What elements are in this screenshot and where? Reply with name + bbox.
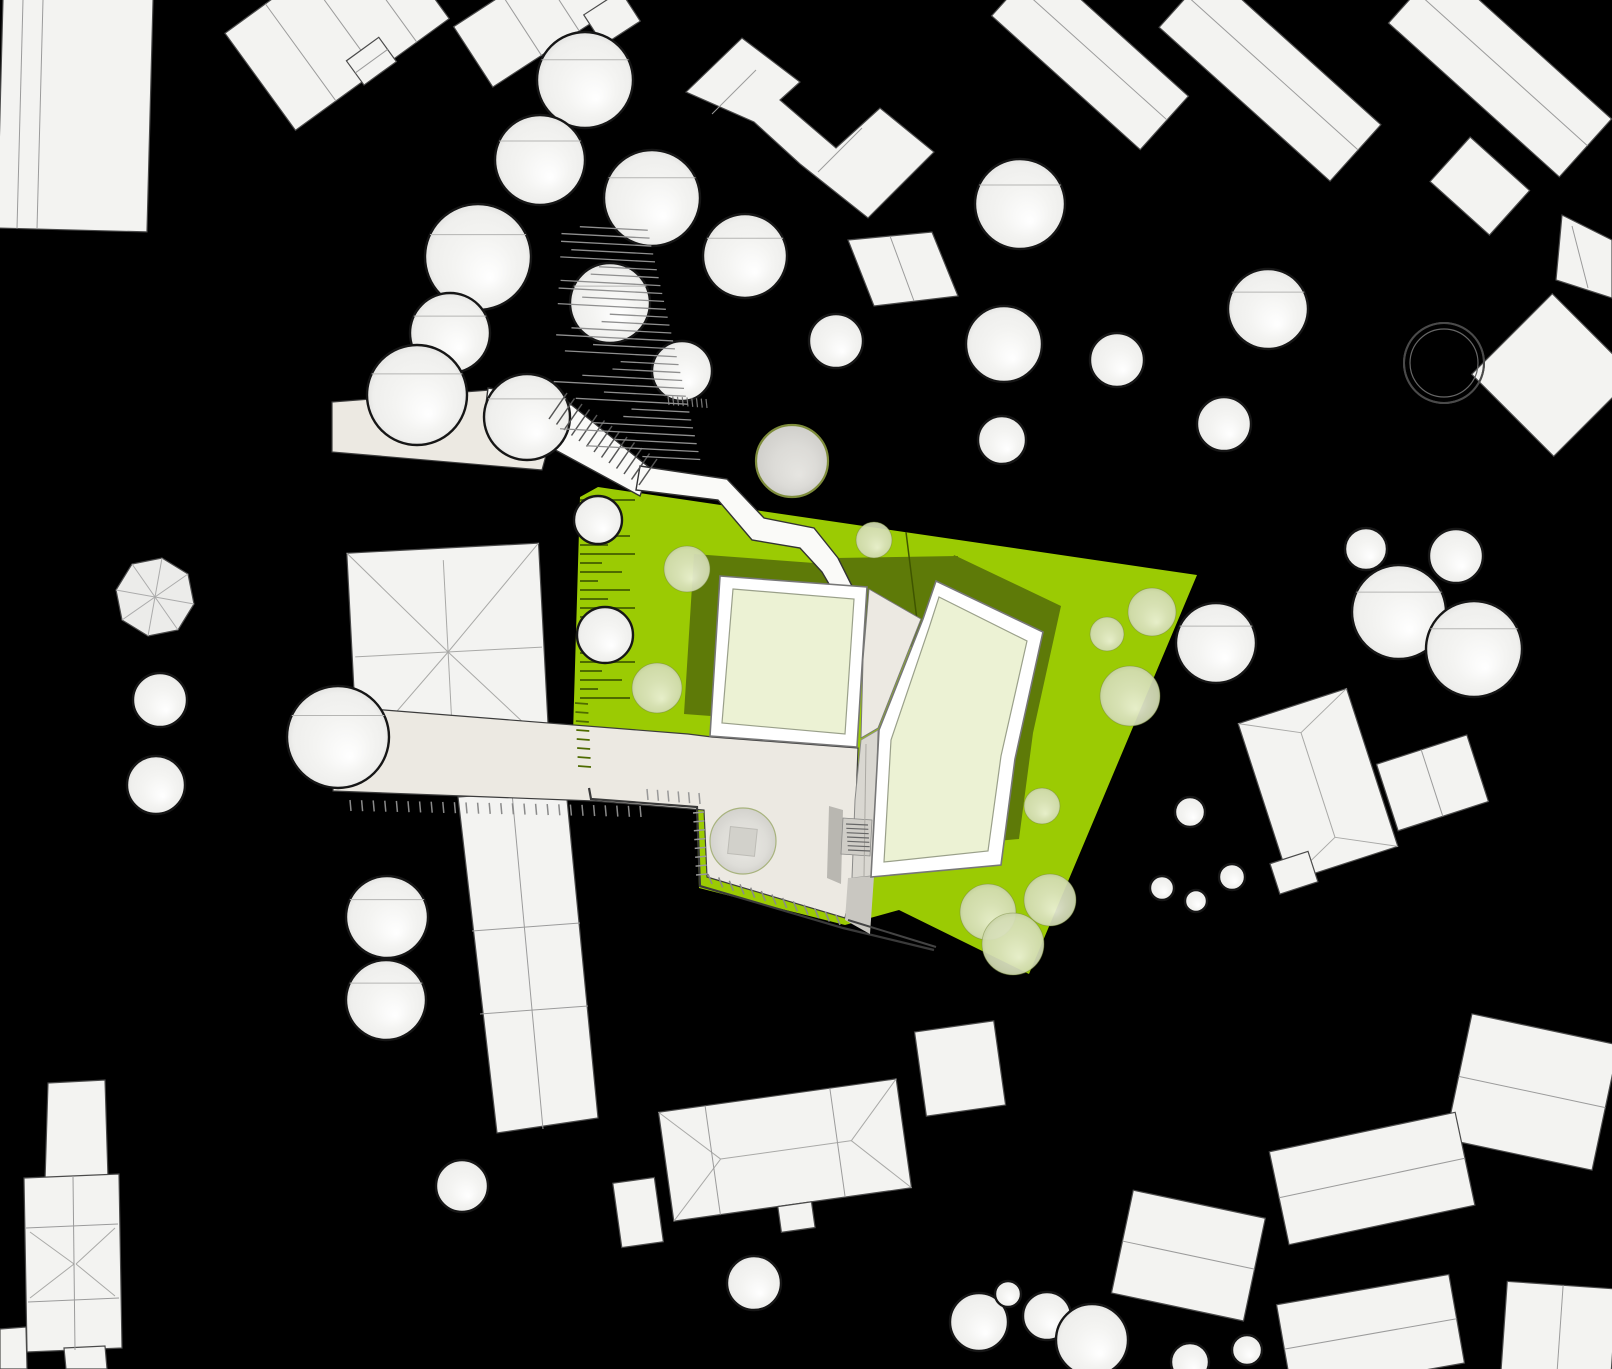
building-gabled-o5 (1501, 1281, 1612, 1369)
tree (756, 425, 828, 497)
tree (1100, 666, 1160, 726)
courtyard-left (722, 589, 854, 734)
tree (1056, 1304, 1128, 1369)
tree (1175, 797, 1205, 827)
tree (856, 522, 892, 558)
tree (664, 546, 710, 592)
tree (346, 876, 428, 958)
tree (537, 32, 633, 128)
tree (367, 345, 467, 445)
tree (978, 416, 1026, 464)
tree (1185, 890, 1207, 912)
tree (809, 314, 863, 368)
tree (710, 808, 776, 874)
tree (1228, 269, 1308, 349)
tree (127, 756, 185, 814)
tree (727, 1256, 781, 1310)
tree (436, 1160, 488, 1212)
tree (1176, 603, 1256, 683)
tree (1232, 1335, 1262, 1365)
site-plan (0, 0, 1612, 1369)
building-square-south (915, 1021, 1006, 1116)
tree (703, 214, 787, 298)
site-plan-canvas (0, 0, 1612, 1369)
tree (574, 496, 622, 544)
tree (966, 306, 1042, 382)
tree (495, 115, 585, 205)
tree (577, 607, 633, 663)
tree (1090, 617, 1124, 651)
tree (1024, 874, 1076, 926)
tree (1171, 1343, 1209, 1369)
tree (484, 374, 570, 460)
tree (1024, 788, 1060, 824)
tree (1429, 529, 1483, 583)
tree (1197, 397, 1251, 451)
tree (1090, 333, 1144, 387)
tree (982, 913, 1044, 975)
tree (287, 686, 389, 788)
tree (133, 673, 187, 727)
building-m2 (613, 1177, 664, 1247)
ramp (827, 806, 843, 884)
tree (1150, 876, 1174, 900)
tree (975, 159, 1065, 249)
tree (1345, 528, 1387, 570)
left-building-roof (710, 576, 867, 747)
tree (1128, 588, 1176, 636)
tree (604, 150, 700, 246)
tree (346, 960, 426, 1040)
building-footprint-topleft (0, 0, 153, 232)
tree (995, 1281, 1021, 1307)
tree (1219, 864, 1245, 890)
tree (1426, 601, 1522, 697)
tree (632, 663, 682, 713)
